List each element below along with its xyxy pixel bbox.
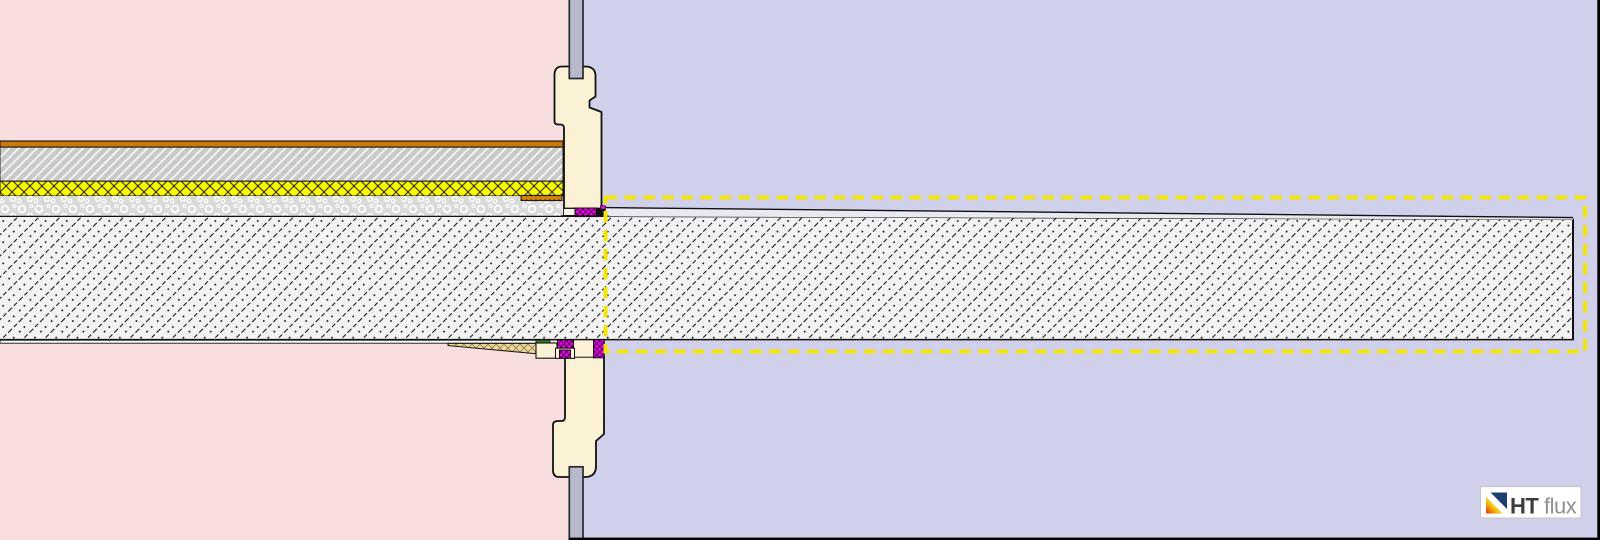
concrete-slab	[0, 216, 1573, 340]
glazing-pane-bottom	[569, 467, 583, 540]
seal-top-small	[601, 206, 606, 209]
floor-assembly	[0, 141, 563, 216]
htflux-logo: HT flux	[1481, 487, 1582, 519]
logo-text-primary: HT	[1510, 494, 1539, 519]
logo-text-secondary: flux	[1544, 494, 1577, 519]
ceiling-plaster-layer	[0, 340, 536, 343]
floor-finish-layer	[0, 141, 563, 147]
screed-layer	[0, 147, 563, 181]
htflux-drawing-window: HT flux	[0, 0, 1600, 540]
seal-bottom-upper	[558, 340, 574, 348]
sill-support-strip	[521, 195, 562, 200]
concrete-slab-body	[0, 216, 1573, 339]
construction-detail-canvas[interactable]: HT flux	[0, 0, 1600, 540]
glazing-pane-top	[569, 0, 583, 79]
fill-layer	[0, 196, 563, 216]
insulation-layer	[0, 181, 563, 196]
head-joint-bottom	[536, 340, 604, 359]
frame-block-left	[536, 343, 557, 358]
logo-text: HT flux	[1510, 494, 1577, 519]
seal-bottom-inner	[560, 350, 571, 358]
seal-bottom-outer	[594, 340, 605, 358]
